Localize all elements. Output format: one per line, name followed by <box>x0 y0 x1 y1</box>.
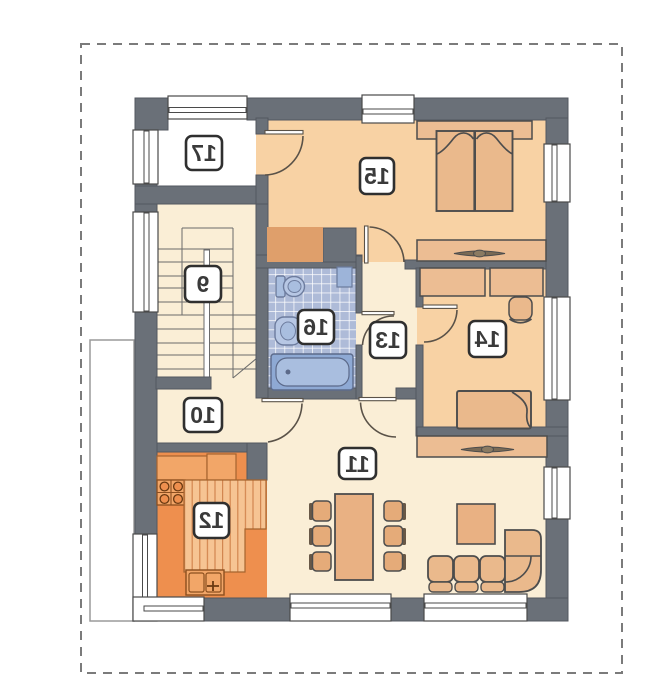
svg-text:13: 13 <box>375 327 401 353</box>
svg-text:16: 16 <box>303 314 329 340</box>
svg-text:11: 11 <box>345 451 370 477</box>
svg-text:10: 10 <box>190 402 216 428</box>
svg-text:12: 12 <box>199 507 225 533</box>
svg-text:9: 9 <box>197 271 210 297</box>
svg-text:17: 17 <box>191 140 217 166</box>
svg-text:15: 15 <box>364 163 390 189</box>
svg-text:14: 14 <box>475 326 501 352</box>
